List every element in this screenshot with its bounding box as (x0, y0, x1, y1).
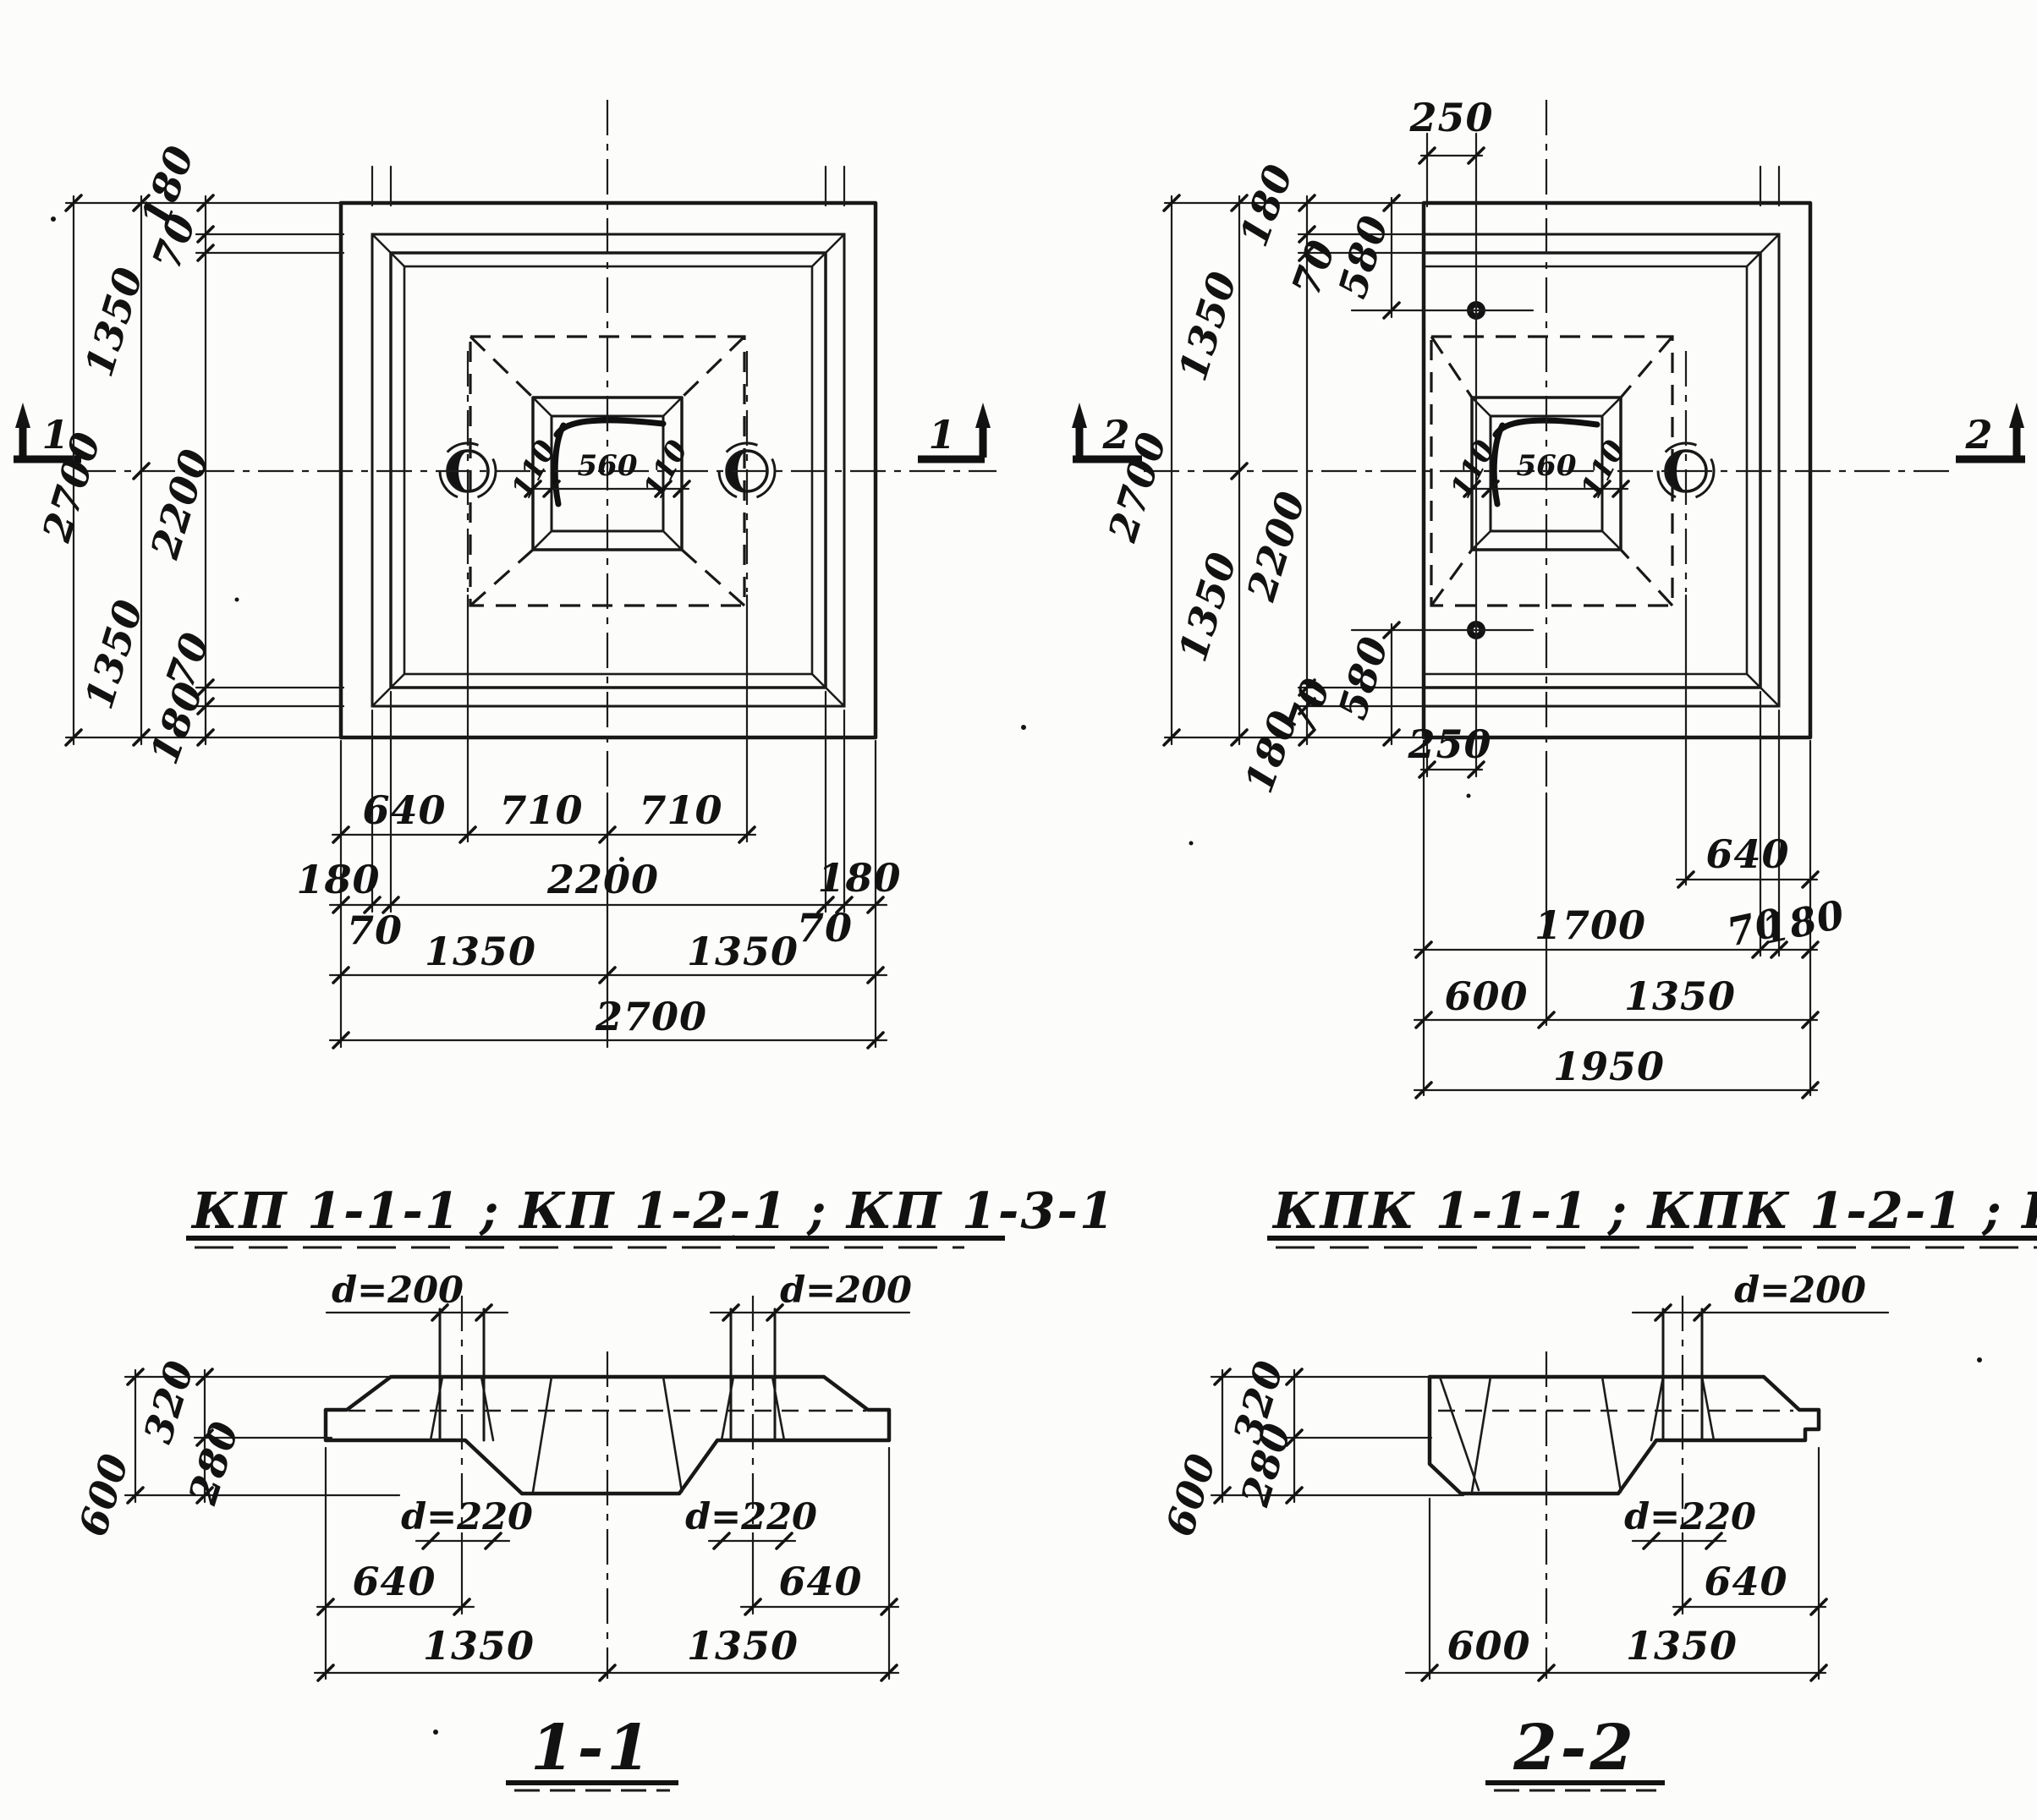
dim-row2-inner: 2200 (546, 857, 659, 902)
dim-half-bottom: 1350 (1170, 546, 1246, 666)
title-plan-right: КПК 1-1-1 ; КПК 1-2-1 ; КПК 1-3-1 (1271, 1181, 2037, 1240)
plan-right-dim-labels: 250 250 2700 1350 1350 180 70 2200 580 5… (1099, 95, 1848, 1089)
dim-row4-total: 2700 (595, 994, 707, 1039)
dim-row2-inner: 1700 (1535, 902, 1646, 948)
pin-diameter: d=200 (780, 1269, 912, 1312)
dim-row1-left: 640 (362, 787, 446, 833)
dim-half-top: 1350 (1170, 266, 1246, 386)
dim-edge-bottom: 180 (141, 676, 213, 770)
dim-half-right: 1350 (687, 1623, 799, 1669)
section-2-2-dim-lines (1211, 1313, 1888, 1679)
dim-row1: 640 (1705, 831, 1789, 877)
dim-inner-v: 2200 (1238, 485, 1315, 606)
dim-row3-right: 1350 (687, 929, 799, 974)
dim-right: 1350 (1626, 1623, 1738, 1669)
dim-row3-right: 1350 (1624, 973, 1736, 1019)
plan-right-dim-lines (1165, 134, 1817, 1095)
dim-off: 640 (1704, 1559, 1787, 1604)
section-mark-label: 1 (928, 412, 956, 458)
blueprint-page: 1 1 (0, 0, 2037, 1820)
title-plan-left: КП 1-1-1 ; КП 1-2-1 ; КП 1-3-1 (190, 1181, 1116, 1240)
section-mark-label: 2 (1964, 412, 1993, 458)
height-total: 600 (69, 1448, 138, 1541)
dim-half-left: 1350 (423, 1623, 535, 1669)
arrow-up-icon (975, 403, 991, 428)
dim-row2-step-l: 70 (347, 907, 403, 953)
section-title: 1-1 (530, 1712, 654, 1784)
dim-anchor-top: 580 (1329, 210, 1397, 303)
pin-diameter: d=200 (332, 1269, 464, 1312)
dim-off-left: 640 (352, 1559, 436, 1604)
pencil-scribble (557, 420, 663, 435)
section-2-2-labels: d=200 600 320 280 d=220 640 600 1350 2-2 (1156, 1269, 1866, 1790)
plan-right: 2 2 (1072, 95, 2025, 1098)
plan-left: 1 1 (14, 100, 997, 1048)
dim-inner-v: 2200 (141, 443, 218, 564)
arrow-up-icon (1072, 403, 1087, 428)
section-mark-1-right: 1 (918, 403, 991, 459)
section-2-2-internal (1438, 1377, 1793, 1492)
dim-row3-left: 1350 (425, 929, 536, 974)
dim-row3-left: 600 (1444, 973, 1528, 1019)
titles: КП 1-1-1 ; КП 1-2-1 ; КП 1-3-1 КПК 1-1-1… (186, 1181, 2037, 1247)
dim-pocket-c: 560 (578, 449, 638, 483)
section-1-1-labels: d=200 d=200 600 320 280 d=220 d=220 640 … (69, 1269, 912, 1790)
pencil-scribble (1494, 425, 1502, 504)
section-1-1: d=200 d=200 600 320 280 d=220 d=220 640 … (69, 1269, 912, 1790)
dim-pocket-r: 110 (637, 435, 695, 504)
hole-diameter: d=220 (1624, 1496, 1756, 1538)
dim-edge-bottom: 180 (1236, 704, 1308, 799)
section-2-2: d=200 600 320 280 d=220 640 600 1350 2-2 (1156, 1269, 1888, 1790)
dim-pocket-c: 560 (1517, 449, 1577, 483)
section-title: 2-2 (1513, 1712, 1637, 1784)
dimension-ticks (66, 195, 883, 1048)
pencil-scribble (555, 425, 563, 504)
dim-pocket-r: 110 (1574, 435, 1633, 504)
dim-row1-right: 710 (639, 787, 722, 833)
hole-diameter: d=220 (685, 1496, 817, 1538)
dim-left: 600 (1447, 1623, 1530, 1669)
dim-top-offset: 250 (1408, 95, 1493, 140)
dim-off-right: 640 (778, 1559, 862, 1604)
hole-diameter: d=220 (401, 1496, 533, 1538)
dim-edge-top: 180 (1231, 158, 1303, 253)
dim-row4-total: 1950 (1553, 1044, 1665, 1089)
dim-row2-edge-l: 180 (296, 857, 380, 902)
section-1-1-centerlines (462, 1296, 753, 1679)
dim-row2-step-r: 70 (797, 905, 853, 951)
height-total: 600 (1156, 1448, 1225, 1541)
dim-anchor-bottom: 580 (1329, 631, 1397, 724)
section-mark-2-right: 2 (1956, 403, 2025, 459)
dimension-ticks (1164, 148, 1818, 1098)
dim-row1-mid: 710 (499, 787, 583, 833)
pin-diameter: d=200 (1734, 1269, 1866, 1312)
arrow-up-icon (15, 403, 30, 428)
height-top: 320 (135, 1355, 203, 1448)
foundation-drawing: 1 1 (0, 0, 2037, 1820)
dim-bottom-offset: 250 (1407, 721, 1491, 767)
arrow-up-icon (2009, 403, 2024, 428)
dim-row2-edge-r: 180 (817, 855, 901, 901)
